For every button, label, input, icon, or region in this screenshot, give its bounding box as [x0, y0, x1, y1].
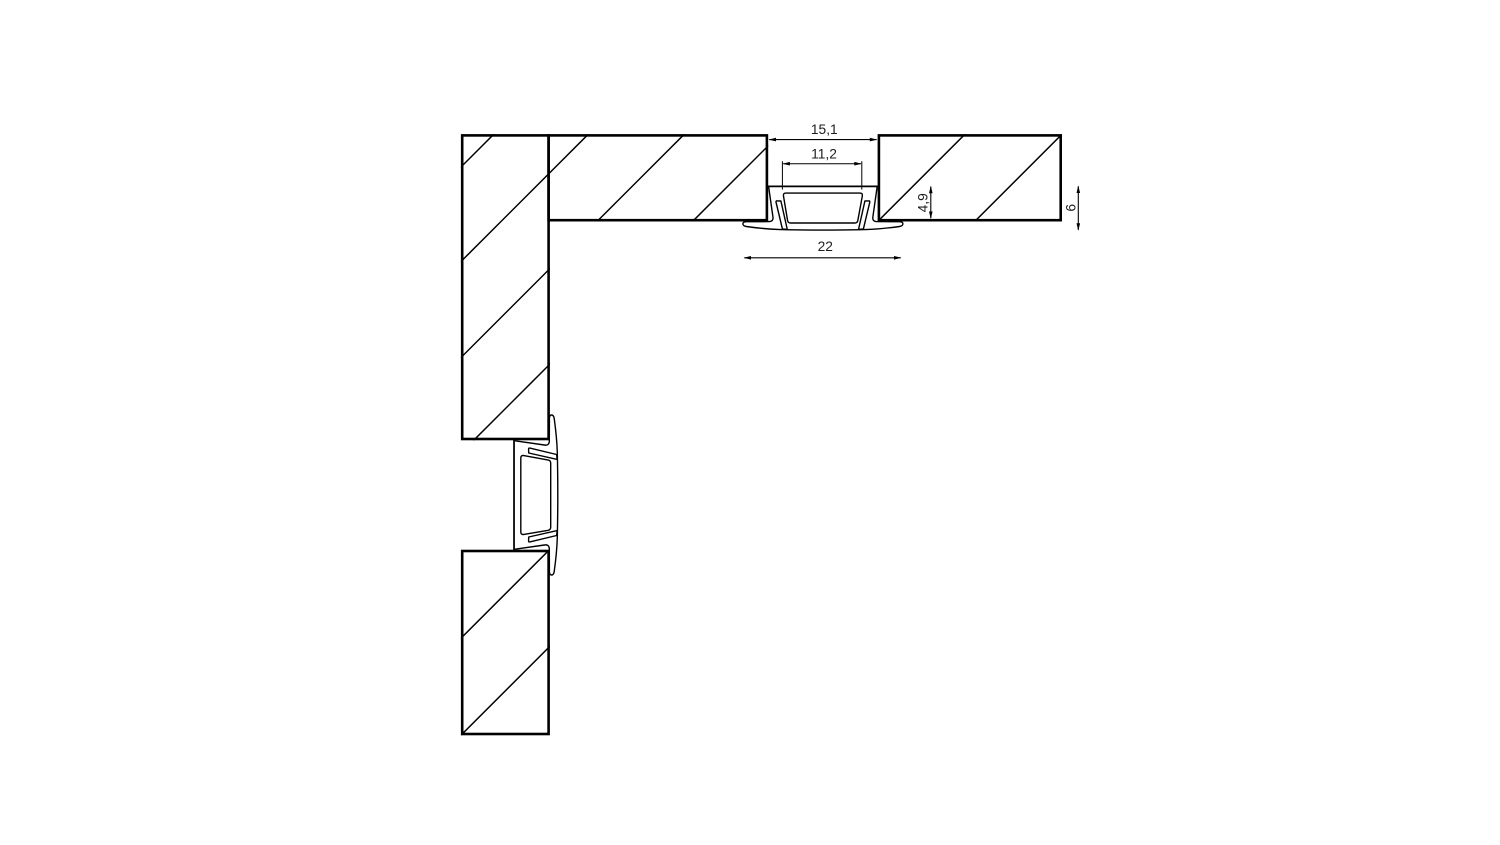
svg-text:22: 22 — [818, 239, 833, 254]
svg-text:11,2: 11,2 — [811, 147, 837, 162]
svg-text:4,9: 4,9 — [915, 193, 930, 213]
svg-text:6: 6 — [1064, 204, 1079, 212]
svg-text:15,1: 15,1 — [811, 122, 838, 137]
